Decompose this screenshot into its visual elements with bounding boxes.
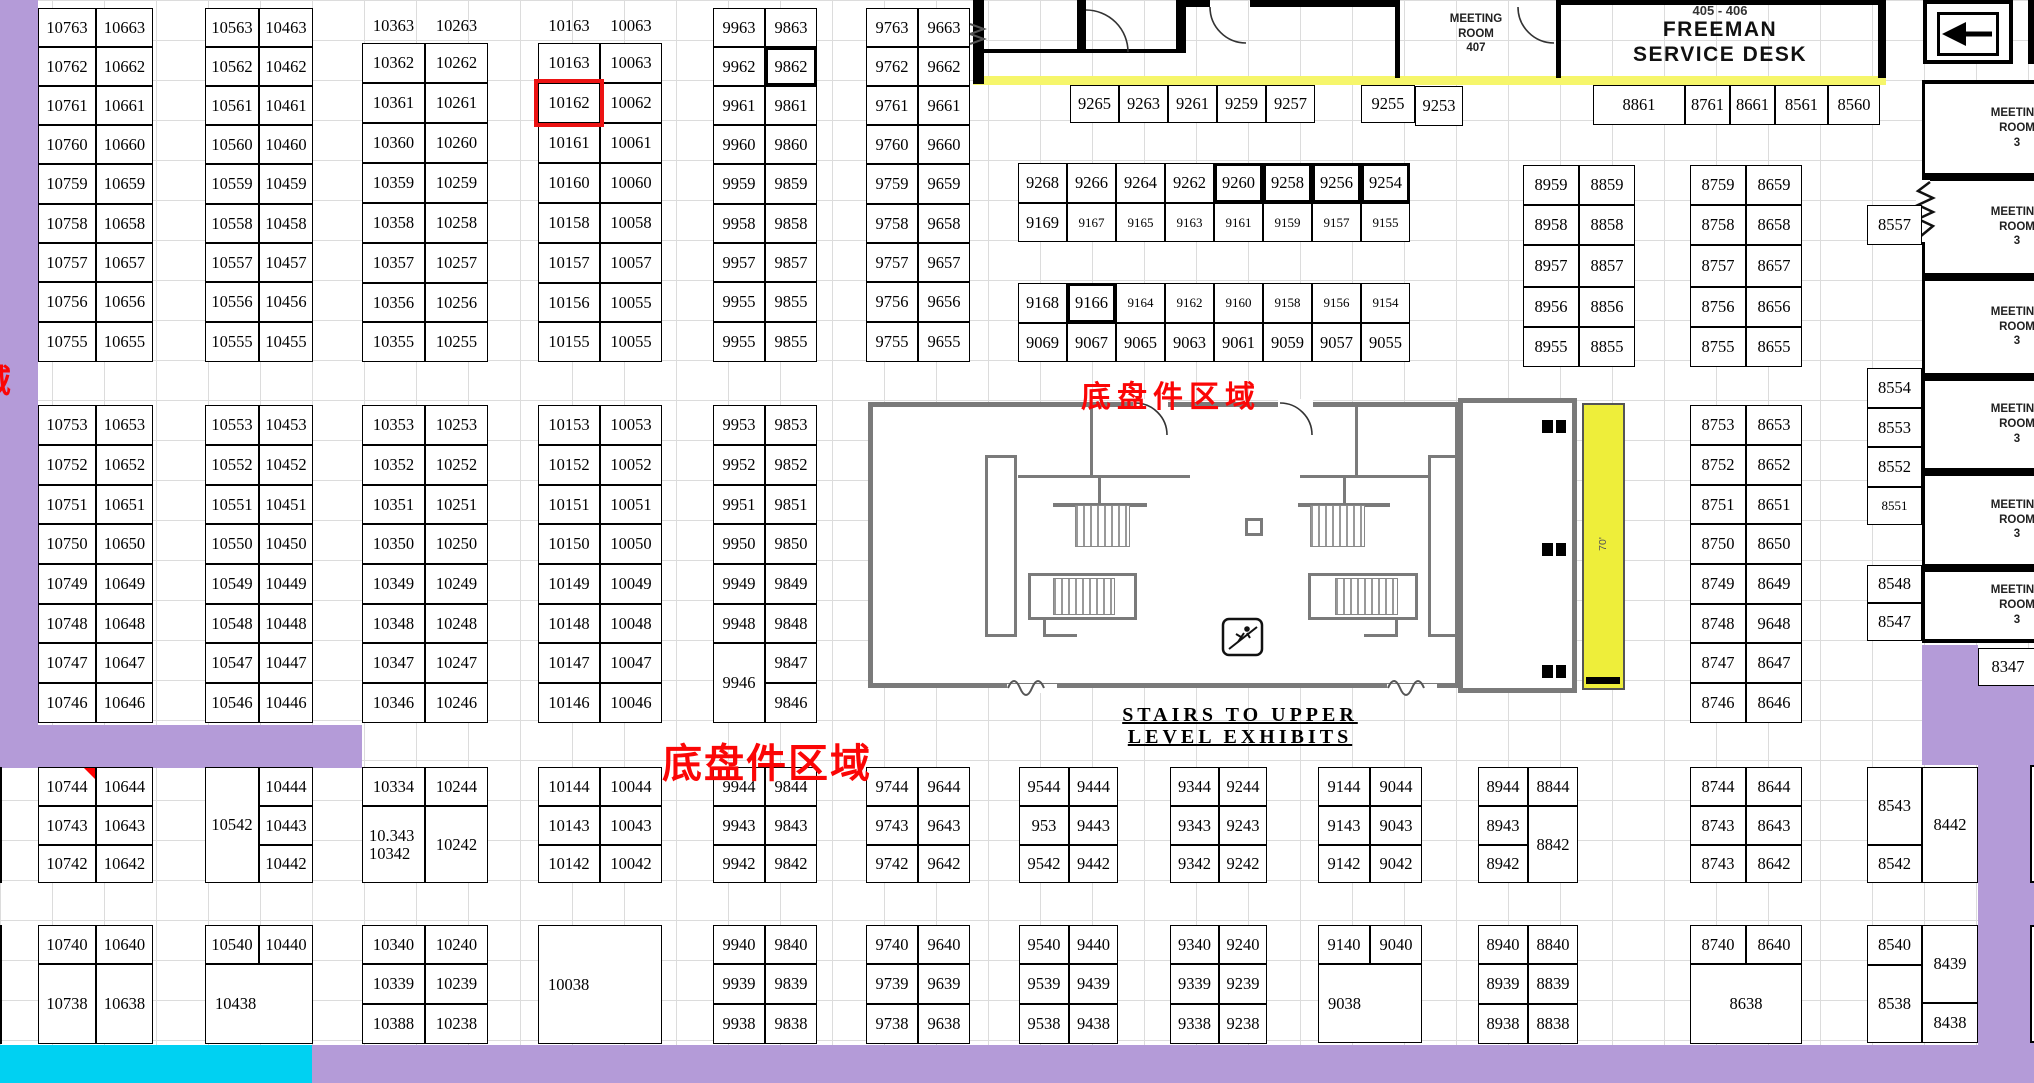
booth-10160[interactable]: 10160	[538, 163, 600, 203]
booth-10657[interactable]: 10657	[96, 243, 153, 282]
booth-9258[interactable]: 9258	[1263, 163, 1312, 203]
booth-10061[interactable]: 10061	[600, 123, 662, 163]
booth-10359[interactable]: 10359	[362, 163, 425, 203]
booth-8761[interactable]: 8761	[1685, 85, 1730, 125]
booth-8740[interactable]: 8740	[1690, 925, 1746, 964]
booth-10142[interactable]: 10142	[538, 845, 600, 883]
booth-9344[interactable]: 9344	[1170, 767, 1219, 806]
booth-9255[interactable]: 9255	[1361, 85, 1415, 123]
booth-10751[interactable]: 10751	[38, 485, 96, 524]
booth-10747[interactable]: 10747	[38, 643, 96, 683]
booth-8940[interactable]: 8940	[1478, 925, 1528, 964]
booth-10251[interactable]: 10251	[425, 485, 488, 524]
booth-9444[interactable]: 9444	[1069, 767, 1118, 806]
booth-8757[interactable]: 8757	[1690, 245, 1746, 287]
booth-10640[interactable]: 10640	[96, 925, 153, 964]
booth-9742[interactable]: 9742	[866, 845, 918, 883]
booth-10552[interactable]: 10552	[205, 445, 259, 485]
booth-10162[interactable]: 10162	[538, 83, 600, 123]
booth-8438[interactable]: 8438	[1922, 1003, 1978, 1043]
booth-10656[interactable]: 10656	[96, 282, 153, 322]
booth-9846[interactable]: 9846	[765, 683, 817, 723]
booth-10161[interactable]: 10161	[538, 123, 600, 163]
booth-9963[interactable]: 9963	[713, 8, 765, 47]
booth-9638[interactable]: 9638	[918, 1004, 970, 1044]
booth-9739[interactable]: 9739	[866, 964, 918, 1004]
booth-10057[interactable]: 10057	[600, 243, 662, 283]
booth-10346[interactable]: 10346	[362, 683, 425, 723]
booth-9661[interactable]: 9661	[918, 86, 970, 125]
booth-10155[interactable]: 10155	[538, 322, 600, 362]
booth-9261[interactable]: 9261	[1168, 85, 1217, 123]
booth-10662[interactable]: 10662	[96, 47, 153, 86]
booth-8753[interactable]: 8753	[1690, 405, 1746, 445]
booth-8656[interactable]: 8656	[1746, 287, 1802, 327]
booth-9165[interactable]: 9165	[1116, 203, 1165, 242]
booth-9843[interactable]: 9843	[765, 806, 817, 845]
booth-8840[interactable]: 8840	[1528, 925, 1578, 964]
booth-10252[interactable]: 10252	[425, 445, 488, 485]
booth-8649[interactable]: 8649	[1746, 564, 1802, 604]
booth-10049[interactable]: 10049	[600, 564, 662, 604]
booth-10744[interactable]: 10744	[38, 767, 96, 806]
booth-9938[interactable]: 9938	[713, 1004, 765, 1044]
booth-10756[interactable]: 10756	[38, 282, 96, 322]
booth-9544[interactable]: 9544	[1019, 767, 1069, 806]
booth-9042[interactable]: 9042	[1370, 845, 1422, 883]
booth-10659[interactable]: 10659	[96, 164, 153, 204]
booth-10646[interactable]: 10646	[96, 683, 153, 723]
booth-8548[interactable]: 8548	[1867, 565, 1922, 603]
booth-8659[interactable]: 8659	[1746, 165, 1802, 205]
booth-8551[interactable]: 8551	[1867, 487, 1922, 525]
booth-10442[interactable]: 10442	[259, 845, 313, 883]
booth-9240[interactable]: 9240	[1219, 925, 1267, 964]
booth-9262[interactable]: 9262	[1165, 163, 1214, 203]
booth-9639[interactable]: 9639	[918, 964, 970, 1004]
booth-8957[interactable]: 8957	[1523, 245, 1579, 287]
booth-10062[interactable]: 10062	[600, 83, 662, 123]
booth-9067[interactable]: 9067	[1067, 323, 1116, 362]
booth-9755[interactable]: 9755	[866, 322, 918, 362]
booth-9243[interactable]: 9243	[1219, 806, 1267, 845]
booth-10444[interactable]: 10444	[259, 767, 313, 806]
booth-10451[interactable]: 10451	[259, 485, 313, 524]
booth-10.343-10342[interactable]: 10.343 10342	[362, 806, 425, 883]
booth-10542[interactable]: 10542	[205, 767, 259, 883]
booth-10755[interactable]: 10755	[38, 322, 96, 362]
booth-10650[interactable]: 10650	[96, 524, 153, 564]
booth-10047[interactable]: 10047	[600, 643, 662, 683]
booth-10458[interactable]: 10458	[259, 204, 313, 243]
booth-10762[interactable]: 10762	[38, 47, 96, 86]
booth-8744[interactable]: 8744	[1690, 767, 1746, 806]
booth-10658[interactable]: 10658	[96, 204, 153, 243]
booth-9863[interactable]: 9863	[765, 8, 817, 47]
booth-10358[interactable]: 10358	[362, 203, 425, 243]
booth-10146[interactable]: 10146	[538, 683, 600, 723]
booth-10044[interactable]: 10044	[600, 767, 662, 806]
booth-10261[interactable]: 10261	[425, 83, 488, 123]
booth-10453[interactable]: 10453	[259, 405, 313, 445]
booth-9167[interactable]: 9167	[1067, 203, 1116, 242]
booth-9059[interactable]: 9059	[1263, 323, 1312, 362]
booth-9762[interactable]: 9762	[866, 47, 918, 86]
booth-8661[interactable]: 8661	[1730, 85, 1775, 125]
booth-9260[interactable]: 9260	[1214, 163, 1263, 203]
booth-9740[interactable]: 9740	[866, 925, 918, 964]
booth-10356[interactable]: 10356	[362, 283, 425, 322]
booth-9158[interactable]: 9158	[1263, 283, 1312, 323]
booth-10153[interactable]: 10153	[538, 405, 600, 445]
booth-10463[interactable]: 10463	[259, 8, 313, 47]
booth-9443[interactable]: 9443	[1069, 806, 1118, 845]
booth-10244[interactable]: 10244	[425, 767, 488, 806]
booth-8647[interactable]: 8647	[1746, 643, 1802, 683]
booth-9648[interactable]: 9648	[1746, 604, 1802, 643]
booth-9143[interactable]: 9143	[1318, 806, 1370, 845]
booth-10055[interactable]: 10055	[600, 322, 662, 362]
booth-10038[interactable]: 10038	[538, 925, 662, 1044]
booth-10357[interactable]: 10357	[362, 243, 425, 283]
booth-10043[interactable]: 10043	[600, 806, 662, 845]
booth-9851[interactable]: 9851	[765, 485, 817, 524]
booth-9253[interactable]: 9253	[1415, 86, 1463, 126]
booth-10757[interactable]: 10757	[38, 243, 96, 282]
booth-8944[interactable]: 8944	[1478, 767, 1528, 806]
booth-9338[interactable]: 9338	[1170, 1004, 1219, 1044]
booth-9957[interactable]: 9957	[713, 243, 765, 282]
booth-9160[interactable]: 9160	[1214, 283, 1263, 323]
booth-10450[interactable]: 10450	[259, 524, 313, 564]
booth-9761[interactable]: 9761	[866, 86, 918, 125]
booth-9859[interactable]: 9859	[765, 164, 817, 204]
booth-10334[interactable]: 10334	[362, 767, 425, 806]
booth-10258[interactable]: 10258	[425, 203, 488, 243]
booth-10655[interactable]: 10655	[96, 322, 153, 362]
booth-10551[interactable]: 10551	[205, 485, 259, 524]
booth-9738[interactable]: 9738	[866, 1004, 918, 1044]
booth-9339[interactable]: 9339	[1170, 964, 1219, 1004]
booth-10249[interactable]: 10249	[425, 564, 488, 604]
booth-9759[interactable]: 9759	[866, 164, 918, 204]
booth-8643[interactable]: 8643	[1746, 806, 1802, 845]
booth-10438[interactable]: 10438	[205, 964, 313, 1044]
booth-8955[interactable]: 8955	[1523, 327, 1579, 367]
booth-10052[interactable]: 10052	[600, 445, 662, 485]
booth-10148[interactable]: 10148	[538, 604, 600, 643]
booth-9144[interactable]: 9144	[1318, 767, 1370, 806]
booth-10046[interactable]: 10046	[600, 683, 662, 723]
booth-9155[interactable]: 9155	[1361, 203, 1410, 242]
booth-10743[interactable]: 10743	[38, 806, 96, 845]
booth-10350[interactable]: 10350	[362, 524, 425, 564]
booth-8859[interactable]: 8859	[1579, 165, 1635, 205]
booth-10158[interactable]: 10158	[538, 203, 600, 243]
booth-9539[interactable]: 9539	[1019, 964, 1069, 1004]
booth-9842[interactable]: 9842	[765, 845, 817, 883]
booth-9244[interactable]: 9244	[1219, 767, 1267, 806]
booth-8640[interactable]: 8640	[1746, 925, 1802, 964]
booth-10562[interactable]: 10562	[205, 47, 259, 86]
booth-9743[interactable]: 9743	[866, 806, 918, 845]
booth-10759[interactable]: 10759	[38, 164, 96, 204]
booth-9857[interactable]: 9857	[765, 243, 817, 282]
booth-10661[interactable]: 10661	[96, 86, 153, 125]
booth-10443[interactable]: 10443	[259, 806, 313, 845]
booth-9959[interactable]: 9959	[713, 164, 765, 204]
booth-10339[interactable]: 10339	[362, 964, 425, 1004]
booth-9756[interactable]: 9756	[866, 282, 918, 322]
booth-9238[interactable]: 9238	[1219, 1004, 1267, 1044]
booth-10742[interactable]: 10742	[38, 845, 96, 883]
booth-8347[interactable]: 8347	[1978, 648, 2034, 686]
booth-10361[interactable]: 10361	[362, 83, 425, 123]
booth-8652[interactable]: 8652	[1746, 445, 1802, 485]
booth-9656[interactable]: 9656	[918, 282, 970, 322]
booth-9848[interactable]: 9848	[765, 604, 817, 643]
booth-9860[interactable]: 9860	[765, 125, 817, 164]
booth-9763[interactable]: 9763	[866, 8, 918, 47]
booth-8943[interactable]: 8943	[1478, 806, 1528, 845]
booth-8751[interactable]: 8751	[1690, 485, 1746, 524]
booth-10151[interactable]: 10151	[538, 485, 600, 524]
booth-9953[interactable]: 9953	[713, 405, 765, 445]
booth-8543[interactable]: 8543	[1867, 767, 1922, 845]
booth-10260[interactable]: 10260	[425, 123, 488, 163]
booth-9154[interactable]: 9154	[1361, 283, 1410, 323]
booth-9663[interactable]: 9663	[918, 8, 970, 47]
booth-10050[interactable]: 10050	[600, 524, 662, 564]
booth-10549[interactable]: 10549	[205, 564, 259, 604]
booth-10638[interactable]: 10638	[96, 964, 153, 1044]
booth-9838[interactable]: 9838	[765, 1004, 817, 1044]
booth-8861[interactable]: 8861	[1593, 85, 1685, 125]
booth-8644[interactable]: 8644	[1746, 767, 1802, 806]
booth-8542[interactable]: 8542	[1867, 845, 1922, 883]
booth-9855[interactable]: 9855	[765, 322, 817, 362]
booth-10447[interactable]: 10447	[259, 643, 313, 683]
booth-9962[interactable]: 9962	[713, 47, 765, 86]
booth-10559[interactable]: 10559	[205, 164, 259, 204]
booth-9655[interactable]: 9655	[918, 322, 970, 362]
booth-8939[interactable]: 8939	[1478, 964, 1528, 1004]
booth-10362[interactable]: 10362	[362, 43, 425, 83]
booth-9855[interactable]: 9855	[765, 282, 817, 322]
booth-10262[interactable]: 10262	[425, 43, 488, 83]
booth-8855[interactable]: 8855	[1579, 327, 1635, 367]
booth-8956[interactable]: 8956	[1523, 287, 1579, 327]
booth-10353[interactable]: 10353	[362, 405, 425, 445]
booth-9942[interactable]: 9942	[713, 845, 765, 883]
booth-9658[interactable]: 9658	[918, 204, 970, 243]
booth-9343[interactable]: 9343	[1170, 806, 1219, 845]
booth-9263[interactable]: 9263	[1119, 85, 1168, 123]
booth-8657[interactable]: 8657	[1746, 245, 1802, 287]
booth-9538[interactable]: 9538	[1019, 1004, 1069, 1044]
booth-8439[interactable]: 8439	[1922, 925, 1978, 1003]
booth-8759[interactable]: 8759	[1690, 165, 1746, 205]
booth-9340[interactable]: 9340	[1170, 925, 1219, 964]
booth-9643[interactable]: 9643	[918, 806, 970, 845]
booth-10156[interactable]: 10156	[538, 283, 600, 322]
booth-9266[interactable]: 9266	[1067, 163, 1116, 203]
booth-10653[interactable]: 10653	[96, 405, 153, 445]
booth-8658[interactable]: 8658	[1746, 205, 1802, 245]
booth-10558[interactable]: 10558	[205, 204, 259, 243]
booth-10758[interactable]: 10758	[38, 204, 96, 243]
booth-10647[interactable]: 10647	[96, 643, 153, 683]
booth-10246[interactable]: 10246	[425, 683, 488, 723]
booth-10540[interactable]: 10540	[205, 925, 259, 964]
booth-9162[interactable]: 9162	[1165, 283, 1214, 323]
booth-8844[interactable]: 8844	[1528, 767, 1578, 806]
booth-10452[interactable]: 10452	[259, 445, 313, 485]
booth-9939[interactable]: 9939	[713, 964, 765, 1004]
booth-9540[interactable]: 9540	[1019, 925, 1069, 964]
booth-10388[interactable]: 10388	[362, 1004, 425, 1044]
booth-9849[interactable]: 9849	[765, 564, 817, 604]
booth-8838[interactable]: 8838	[1528, 1004, 1578, 1044]
booth-9140[interactable]: 9140	[1318, 925, 1370, 964]
booth-10557[interactable]: 10557	[205, 243, 259, 282]
booth-8653[interactable]: 8653	[1746, 405, 1802, 445]
booth-10250[interactable]: 10250	[425, 524, 488, 564]
booth-9043[interactable]: 9043	[1370, 806, 1422, 845]
booth-8442[interactable]: 8442	[1922, 767, 1978, 883]
booth-9069[interactable]: 9069	[1018, 323, 1067, 362]
booth-9438[interactable]: 9438	[1069, 1004, 1118, 1044]
booth-10150[interactable]: 10150	[538, 524, 600, 564]
booth-10548[interactable]: 10548	[205, 604, 259, 643]
booth-9958[interactable]: 9958	[713, 204, 765, 243]
booth-9038[interactable]: 9038	[1318, 964, 1422, 1043]
booth-8755[interactable]: 8755	[1690, 327, 1746, 367]
booth-10462[interactable]: 10462	[259, 47, 313, 86]
booth-8938[interactable]: 8938	[1478, 1004, 1528, 1044]
booth-9057[interactable]: 9057	[1312, 323, 1361, 362]
booth-9644[interactable]: 9644	[918, 767, 970, 806]
booth-9850[interactable]: 9850	[765, 524, 817, 564]
booth-10239[interactable]: 10239	[425, 964, 488, 1004]
booth-8560[interactable]: 8560	[1828, 85, 1880, 125]
booth-10259[interactable]: 10259	[425, 163, 488, 203]
booth-10055[interactable]: 10055	[600, 283, 662, 322]
booth-8747[interactable]: 8747	[1690, 643, 1746, 683]
booth-9164[interactable]: 9164	[1116, 283, 1165, 323]
booth-8959[interactable]: 8959	[1523, 165, 1579, 205]
booth-9065[interactable]: 9065	[1116, 323, 1165, 362]
booth-10149[interactable]: 10149	[538, 564, 600, 604]
booth-10560[interactable]: 10560	[205, 125, 259, 164]
booth-8758[interactable]: 8758	[1690, 205, 1746, 245]
booth-10349[interactable]: 10349	[362, 564, 425, 604]
booth-8553[interactable]: 8553	[1867, 408, 1922, 447]
booth-9858[interactable]: 9858	[765, 204, 817, 243]
booth-9440[interactable]: 9440	[1069, 925, 1118, 964]
booth-10051[interactable]: 10051	[600, 485, 662, 524]
booth-9256[interactable]: 9256	[1312, 163, 1361, 203]
booth-10652[interactable]: 10652	[96, 445, 153, 485]
booth-9853[interactable]: 9853	[765, 405, 817, 445]
booth-9960[interactable]: 9960	[713, 125, 765, 164]
booth-10255[interactable]: 10255	[425, 322, 488, 362]
booth-8552[interactable]: 8552	[1867, 447, 1922, 487]
booth-10748[interactable]: 10748	[38, 604, 96, 643]
booth-8655[interactable]: 8655	[1746, 327, 1802, 367]
booth-10649[interactable]: 10649	[96, 564, 153, 604]
booth-9949[interactable]: 9949	[713, 564, 765, 604]
booth-9268[interactable]: 9268	[1018, 163, 1067, 203]
booth-9660[interactable]: 9660	[918, 125, 970, 164]
booth-10561[interactable]: 10561	[205, 86, 259, 125]
booth-9657[interactable]: 9657	[918, 243, 970, 282]
booth-9063[interactable]: 9063	[1165, 323, 1214, 362]
booth-8842[interactable]: 8842	[1528, 806, 1578, 883]
booth-10642[interactable]: 10642	[96, 845, 153, 883]
booth-9955[interactable]: 9955	[713, 282, 765, 322]
booth-10753[interactable]: 10753	[38, 405, 96, 445]
booth-10550[interactable]: 10550	[205, 524, 259, 564]
booth-10663[interactable]: 10663	[96, 8, 153, 47]
booth-9542[interactable]: 9542	[1019, 845, 1069, 883]
booth-8646[interactable]: 8646	[1746, 683, 1802, 723]
booth-10256[interactable]: 10256	[425, 283, 488, 322]
booth-953[interactable]: 953	[1019, 806, 1069, 845]
booth-10738[interactable]: 10738	[38, 964, 96, 1044]
booth-8857[interactable]: 8857	[1579, 245, 1635, 287]
booth-8650[interactable]: 8650	[1746, 524, 1802, 564]
booth-9642[interactable]: 9642	[918, 845, 970, 883]
booth-8746[interactable]: 8746	[1690, 683, 1746, 723]
booth-8856[interactable]: 8856	[1579, 287, 1635, 327]
booth-9163[interactable]: 9163	[1165, 203, 1214, 242]
booth-10547[interactable]: 10547	[205, 643, 259, 683]
booth-8942[interactable]: 8942	[1478, 845, 1528, 883]
booth-9157[interactable]: 9157	[1312, 203, 1361, 242]
booth-10648[interactable]: 10648	[96, 604, 153, 643]
booth-9760[interactable]: 9760	[866, 125, 918, 164]
booth-10240[interactable]: 10240	[425, 925, 488, 964]
booth-9961[interactable]: 9961	[713, 86, 765, 125]
booth-10248[interactable]: 10248	[425, 604, 488, 643]
booth-10457[interactable]: 10457	[259, 243, 313, 282]
booth-8958[interactable]: 8958	[1523, 205, 1579, 245]
booth-10063[interactable]: 10063	[600, 43, 662, 83]
booth-9840[interactable]: 9840	[765, 925, 817, 964]
booth-9847[interactable]: 9847	[765, 643, 817, 683]
booth-9439[interactable]: 9439	[1069, 964, 1118, 1004]
booth-9757[interactable]: 9757	[866, 243, 918, 282]
booth-8540[interactable]: 8540	[1867, 925, 1922, 965]
booth-8547[interactable]: 8547	[1867, 603, 1922, 641]
booth-10048[interactable]: 10048	[600, 604, 662, 643]
booth-9044[interactable]: 9044	[1370, 767, 1422, 806]
booth-9142[interactable]: 9142	[1318, 845, 1370, 883]
booth-10348[interactable]: 10348	[362, 604, 425, 643]
booth-10163[interactable]: 10163	[538, 43, 600, 83]
booth-10058[interactable]: 10058	[600, 203, 662, 243]
booth-10546[interactable]: 10546	[205, 683, 259, 723]
booth-10440[interactable]: 10440	[259, 925, 313, 964]
booth-10360[interactable]: 10360	[362, 123, 425, 163]
booth-10238[interactable]: 10238	[425, 1004, 488, 1044]
booth-10555[interactable]: 10555	[205, 322, 259, 362]
booth-10752[interactable]: 10752	[38, 445, 96, 485]
booth-9955[interactable]: 9955	[713, 322, 765, 362]
booth-9161[interactable]: 9161	[1214, 203, 1263, 242]
booth-10446[interactable]: 10446	[259, 683, 313, 723]
